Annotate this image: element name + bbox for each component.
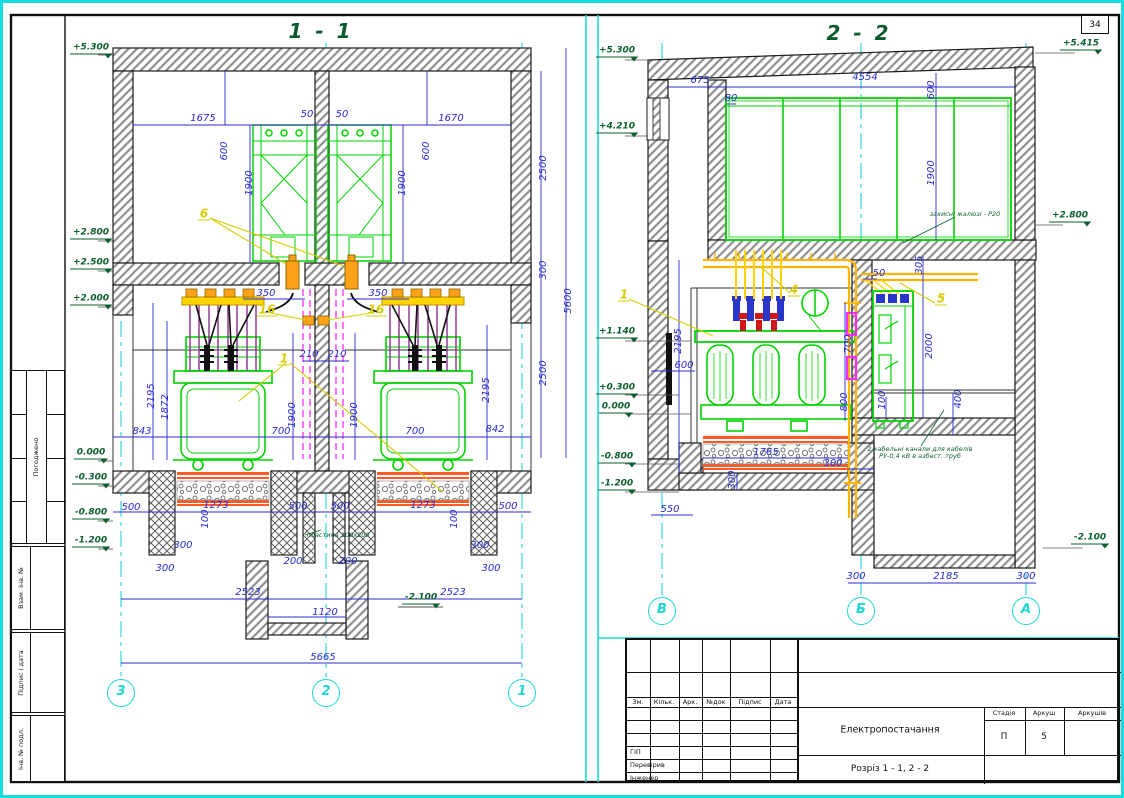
stamp-approved-label: Погоджено — [32, 438, 40, 477]
tb-col-pidpys: Підпис — [738, 698, 761, 706]
stamp-inv-section: Інв. № подл. — [11, 715, 65, 782]
walls-2-2 — [648, 47, 1036, 568]
louver-bar — [666, 333, 672, 405]
tb-drawing-title: Розріз 1 - 1, 2 - 2 — [851, 764, 929, 774]
bushings — [732, 296, 785, 331]
stamp-row-line — [46, 501, 66, 502]
tb-sheet-col: Аркуш — [1033, 709, 1055, 717]
stamp-signature-section: Підпис і дата — [11, 632, 65, 713]
tb-sheets-col: Аркушів — [1078, 709, 1106, 717]
stamp-vzam-label: Взам. інв. № — [17, 567, 25, 609]
tb-col-data: Дата — [775, 698, 792, 706]
vent-louvers — [726, 98, 1011, 240]
section-1-1-drawing — [98, 43, 566, 677]
stamp-divider — [26, 371, 27, 543]
tb-row-checked: Перевірив — [630, 761, 665, 769]
stamp-inv-label: Інв. № подл. — [17, 728, 25, 770]
title-block: Зм. Кільк. Арк. №док Підпис Дата ГІП Пер… — [625, 638, 1119, 782]
tb-col-ndok: №док — [706, 698, 725, 706]
transformer-1 — [173, 289, 273, 470]
tb-col-kilk: Кільк. — [654, 698, 674, 706]
stamp-approved-section: Погоджено — [11, 370, 65, 544]
stamp-row-line — [12, 501, 26, 502]
stamp-divider — [30, 633, 31, 712]
sheet-number-box: 34 — [1081, 15, 1109, 34]
drawing-sheet: 1 - 116755050167060060019001900250030025… — [0, 0, 1124, 798]
tb-row-engineer: Інженер — [630, 774, 658, 782]
tb-row-gip: ГІП — [630, 748, 641, 756]
stamp-row-line — [12, 414, 26, 415]
stamp-vzam-section: Взам. інв. № — [11, 546, 65, 630]
section-2-2-drawing — [625, 43, 1083, 595]
sheet-number: 34 — [1089, 20, 1100, 30]
stamp-row-line — [46, 458, 66, 459]
tb-project-title: Електропостачання — [840, 725, 939, 736]
tb-stage-value: П — [1001, 732, 1008, 742]
stamp-divider — [46, 371, 47, 543]
transformer-rails — [703, 436, 848, 470]
tb-col-ark: Арк. — [683, 698, 698, 706]
stamp-signature-label: Підпис і дата — [17, 650, 25, 695]
stamp-row-line — [46, 414, 66, 415]
dimension-lines-1-1 — [113, 48, 566, 663]
stamp-divider — [30, 547, 31, 629]
stamp-divider — [30, 716, 31, 781]
tb-sheet-value: 5 — [1041, 732, 1047, 742]
transformer-side-view — [695, 290, 855, 431]
lv-cabinet — [873, 291, 913, 428]
stamp-row-line — [12, 458, 26, 459]
tb-stage-col: Стадія — [993, 709, 1016, 717]
walls-1-1 — [113, 48, 531, 639]
tb-col-zm: Зм. — [632, 698, 643, 706]
